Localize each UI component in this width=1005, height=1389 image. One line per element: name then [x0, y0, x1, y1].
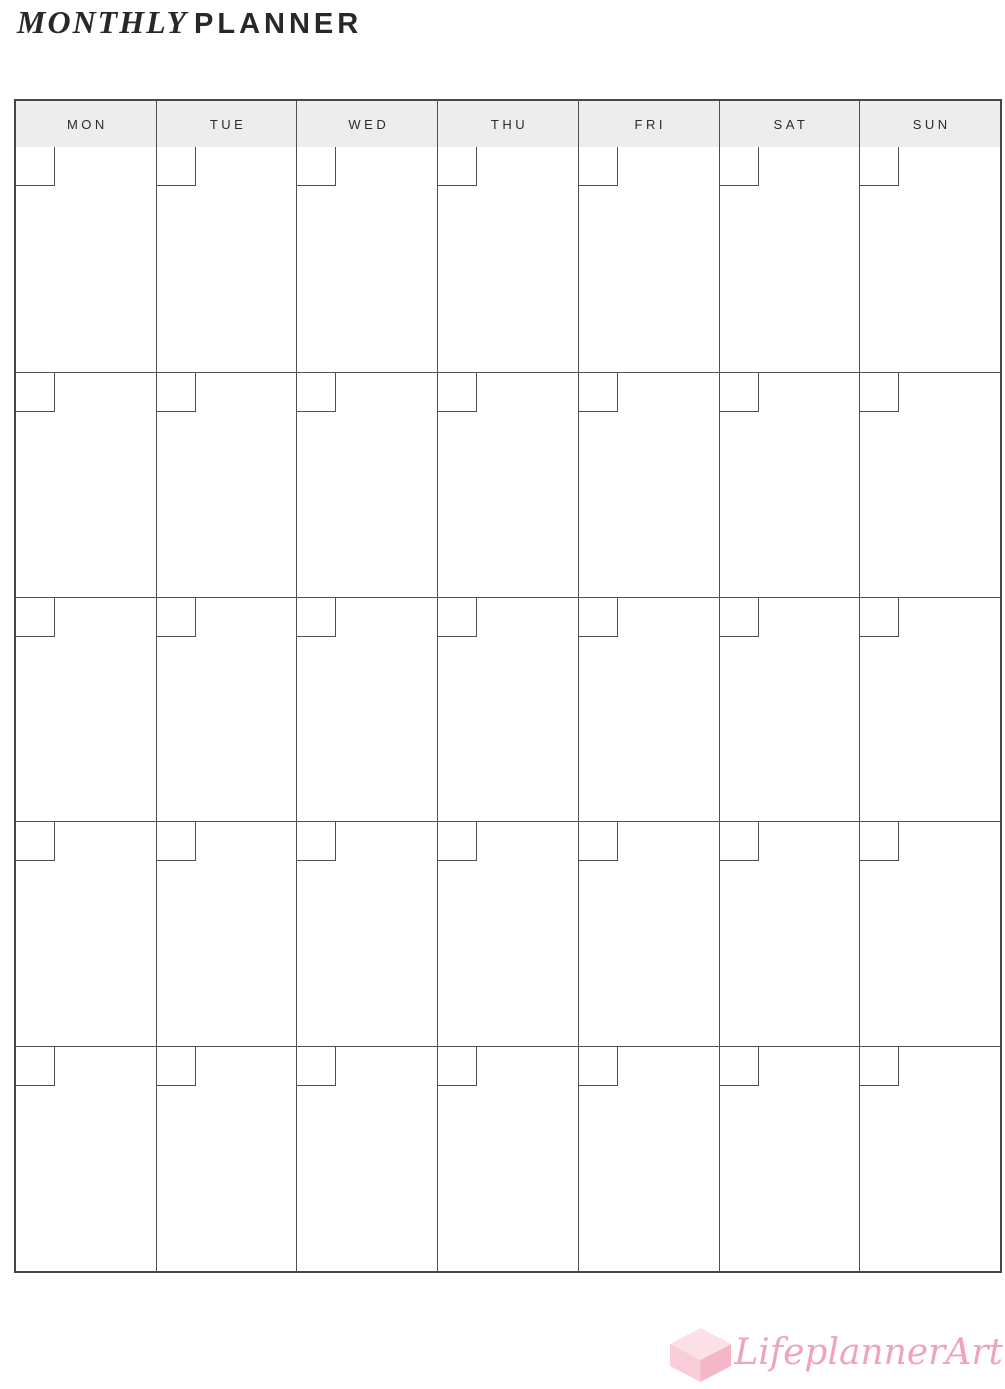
- date-corner-box: [16, 373, 55, 412]
- day-header-tue: TUE: [157, 101, 298, 147]
- day-cell: [297, 147, 438, 372]
- calendar-body: [16, 147, 1000, 1271]
- day-cell: [860, 597, 1000, 822]
- date-corner-box: [297, 1047, 336, 1086]
- date-corner-box: [720, 598, 759, 637]
- date-corner-box: [157, 147, 196, 186]
- page-title: MONTHLYPLANNER: [17, 4, 362, 41]
- planner-page: MONTHLYPLANNER MON TUE WED THU FRI SAT S…: [0, 0, 1005, 1389]
- date-corner-box: [860, 822, 899, 861]
- title-word-monthly: MONTHLY: [17, 4, 188, 40]
- day-cell: [720, 372, 861, 597]
- date-corner-box: [16, 598, 55, 637]
- day-header-wed: WED: [297, 101, 438, 147]
- date-corner-box: [438, 147, 477, 186]
- day-cell: [438, 372, 579, 597]
- day-cell: [860, 372, 1000, 597]
- week-row: [16, 1046, 1000, 1271]
- day-cell: [579, 821, 720, 1046]
- day-cell: [720, 821, 861, 1046]
- day-cell: [438, 147, 579, 372]
- date-corner-box: [860, 598, 899, 637]
- day-cell: [16, 372, 157, 597]
- date-corner-box: [16, 147, 55, 186]
- day-cell: [438, 597, 579, 822]
- date-corner-box: [16, 1047, 55, 1086]
- date-corner-box: [860, 147, 899, 186]
- day-cell: [16, 1046, 157, 1271]
- day-cell: [579, 372, 720, 597]
- date-corner-box: [297, 598, 336, 637]
- date-corner-box: [157, 822, 196, 861]
- date-corner-box: [720, 1047, 759, 1086]
- day-cell: [297, 597, 438, 822]
- day-cell: [16, 597, 157, 822]
- day-cell: [860, 147, 1000, 372]
- date-corner-box: [860, 1047, 899, 1086]
- date-corner-box: [438, 598, 477, 637]
- date-corner-box: [438, 1047, 477, 1086]
- day-cell: [438, 1046, 579, 1271]
- date-corner-box: [297, 147, 336, 186]
- day-cell: [579, 1046, 720, 1271]
- date-corner-box: [720, 147, 759, 186]
- day-header-sat: SAT: [720, 101, 861, 147]
- date-corner-box: [579, 822, 618, 861]
- day-cell: [16, 821, 157, 1046]
- day-cell: [579, 597, 720, 822]
- day-cell: [16, 147, 157, 372]
- day-cell: [579, 147, 720, 372]
- day-cell: [157, 372, 298, 597]
- date-corner-box: [720, 373, 759, 412]
- date-corner-box: [157, 598, 196, 637]
- date-corner-box: [579, 373, 618, 412]
- date-corner-box: [297, 373, 336, 412]
- date-corner-box: [579, 598, 618, 637]
- date-corner-box: [157, 373, 196, 412]
- day-cell: [438, 821, 579, 1046]
- day-cell: [157, 147, 298, 372]
- day-cell: [297, 1046, 438, 1271]
- date-corner-box: [297, 822, 336, 861]
- date-corner-box: [579, 1047, 618, 1086]
- day-header-fri: FRI: [579, 101, 720, 147]
- date-corner-box: [860, 373, 899, 412]
- day-cell: [157, 821, 298, 1046]
- date-corner-box: [438, 373, 477, 412]
- week-row: [16, 821, 1000, 1046]
- day-header-thu: THU: [438, 101, 579, 147]
- date-corner-box: [579, 147, 618, 186]
- day-cell: [720, 597, 861, 822]
- week-row: [16, 597, 1000, 822]
- day-cell: [297, 372, 438, 597]
- day-cell: [157, 1046, 298, 1271]
- day-header-row: MON TUE WED THU FRI SAT SUN: [16, 101, 1000, 147]
- date-corner-box: [157, 1047, 196, 1086]
- day-cell: [860, 821, 1000, 1046]
- week-row: [16, 372, 1000, 597]
- date-corner-box: [720, 822, 759, 861]
- cube-icon: [670, 1328, 731, 1382]
- day-cell: [297, 821, 438, 1046]
- brand-logo-text: LifeplannerArt: [734, 1335, 1003, 1375]
- title-word-planner: PLANNER: [194, 8, 362, 40]
- day-cell: [860, 1046, 1000, 1271]
- week-row: [16, 147, 1000, 372]
- brand-logo: LifeplannerArt: [670, 1328, 1003, 1382]
- day-header-mon: MON: [16, 101, 157, 147]
- day-cell: [720, 147, 861, 372]
- monthly-calendar-grid: MON TUE WED THU FRI SAT SUN: [14, 99, 1002, 1273]
- day-header-sun: SUN: [860, 101, 1000, 147]
- date-corner-box: [16, 822, 55, 861]
- day-cell: [157, 597, 298, 822]
- date-corner-box: [438, 822, 477, 861]
- day-cell: [720, 1046, 861, 1271]
